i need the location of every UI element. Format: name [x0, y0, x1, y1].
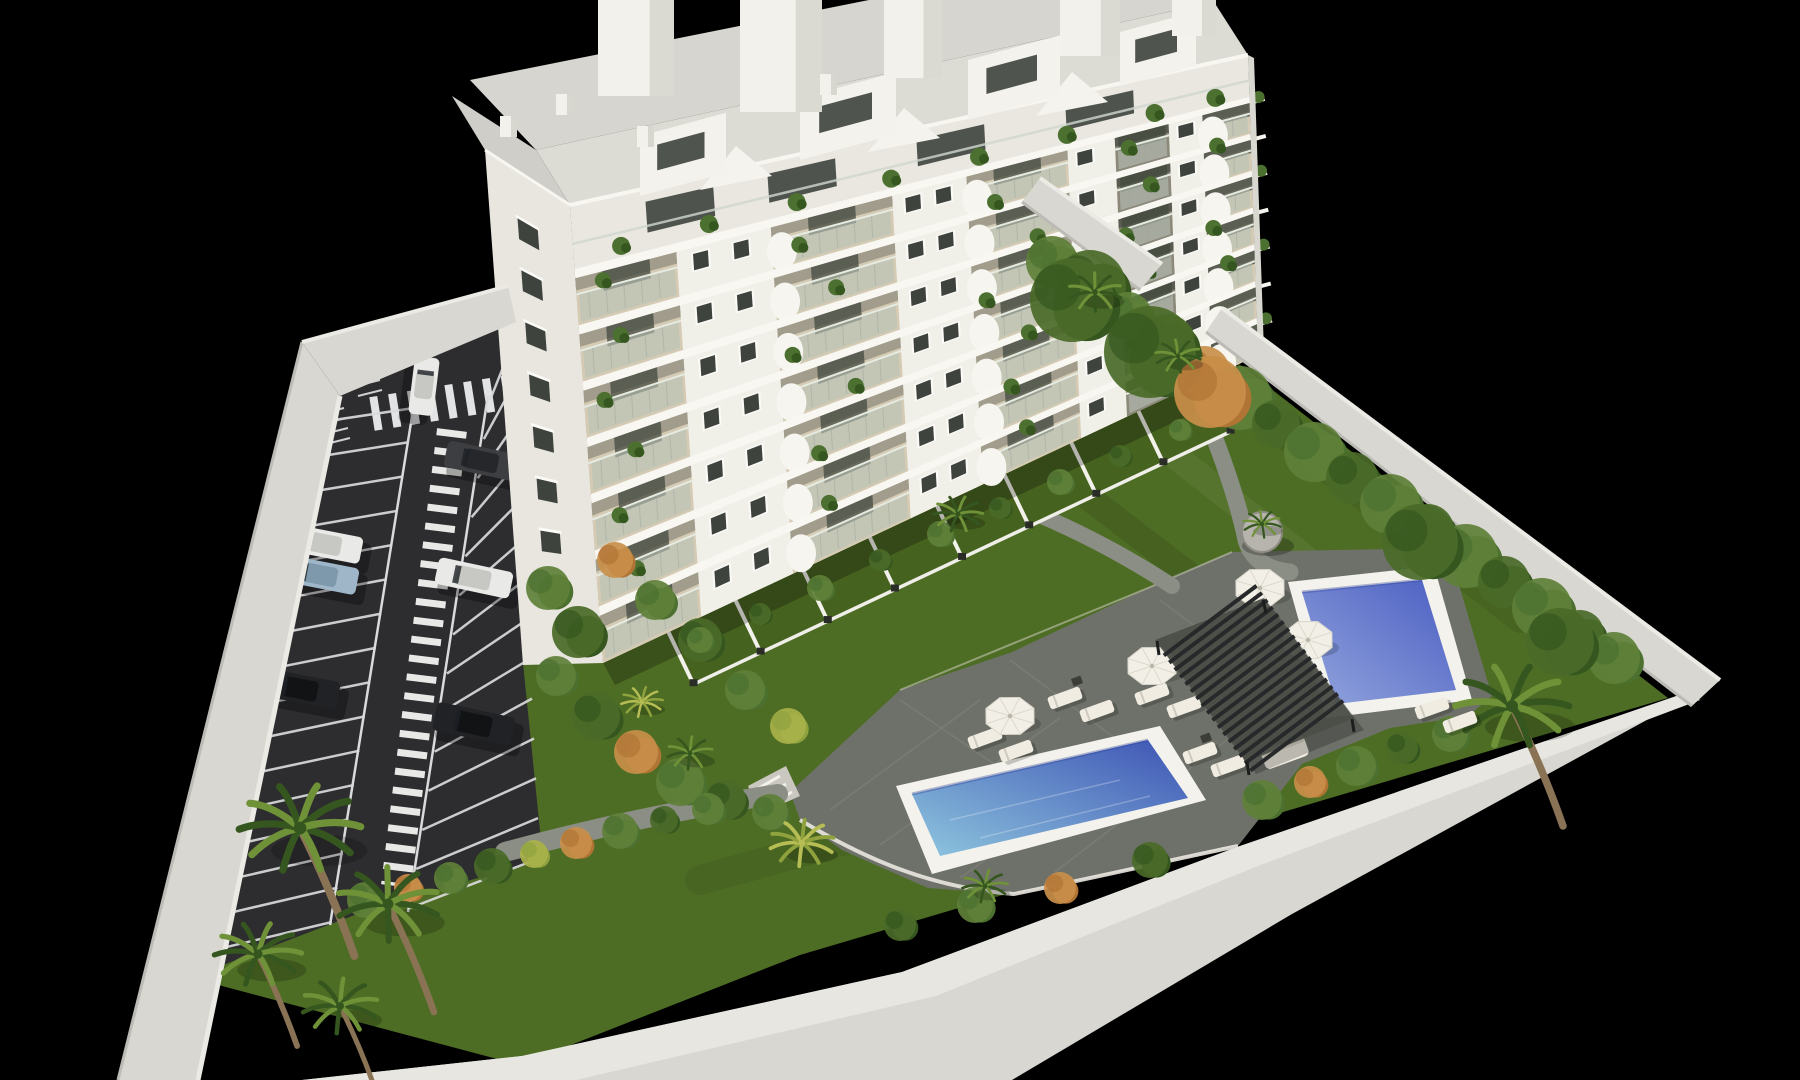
terrace-hedge	[688, 629, 702, 643]
parasol-pole	[1008, 714, 1012, 718]
rail-mullion	[1236, 231, 1237, 248]
balcony-plant	[994, 200, 1004, 210]
terrace-hedge	[750, 605, 762, 617]
render-canvas	[0, 0, 1800, 1080]
border-bush	[604, 816, 624, 836]
palm-crown	[640, 700, 644, 704]
roof-bulkhead-shade	[1202, 0, 1216, 36]
garden-bush	[574, 696, 600, 722]
palm-crown	[983, 884, 988, 889]
wall-bush	[1244, 783, 1266, 805]
palm-crown	[799, 840, 806, 847]
palm-crown	[1260, 522, 1264, 526]
palm-crown	[336, 1002, 344, 1010]
terrace-hedge	[808, 577, 822, 591]
parasol-pole	[1150, 664, 1154, 668]
roof-bulkhead-shade	[923, 0, 942, 78]
balcony-plant	[1227, 261, 1237, 271]
terrace-post	[824, 616, 832, 623]
balcony-plant	[818, 451, 828, 461]
border-bush	[694, 795, 712, 813]
wall-bush	[1296, 768, 1314, 786]
terrace-hedge	[1110, 447, 1122, 459]
balcony-plant	[792, 353, 802, 363]
garden-bush	[637, 583, 659, 605]
balcony-plant	[828, 501, 838, 511]
balcony-plant	[1026, 425, 1036, 435]
balcony-plant	[1212, 226, 1222, 236]
terrace-post	[757, 648, 765, 655]
roof-bulkhead-shade	[796, 0, 822, 112]
balcony-plant	[1128, 146, 1138, 156]
palm-crown	[1506, 700, 1518, 712]
balcony-plant	[604, 398, 614, 408]
balcony-plant	[602, 278, 612, 288]
roof-chimney-shade	[648, 126, 654, 147]
palm-crown	[955, 511, 960, 516]
terrace-hedge	[1170, 421, 1182, 433]
terrace-hedge	[928, 523, 942, 537]
terrace-plant	[1215, 95, 1225, 105]
garden-bush	[772, 711, 792, 731]
garden-bush	[599, 545, 619, 565]
garden-bush	[658, 762, 684, 788]
garden-bush	[616, 733, 640, 757]
hedge-bush	[1329, 456, 1358, 485]
terrace-plant	[1155, 110, 1165, 120]
hedge-bush	[1287, 427, 1320, 460]
palm-crown	[1176, 354, 1181, 359]
balcony-plant	[986, 298, 996, 308]
terrace-plant	[891, 176, 901, 186]
balcony-plant	[1010, 385, 1020, 395]
terrace-hedge	[990, 499, 1002, 511]
border-bush	[521, 842, 536, 857]
parasol-pole	[1258, 586, 1262, 590]
terrace-plant	[621, 243, 631, 253]
garden-bush	[555, 610, 584, 639]
terrace-plant	[709, 221, 719, 231]
balcony-plant	[835, 285, 845, 295]
garden-bush	[538, 659, 560, 681]
terrace-post	[1159, 458, 1167, 465]
hedge-bush	[1386, 510, 1428, 552]
wall-bush	[1046, 874, 1064, 892]
roof-bulkhead-shade	[650, 0, 674, 96]
palm-crown	[294, 822, 307, 835]
terrace-hedge	[870, 551, 882, 563]
palm-crown	[1092, 289, 1098, 295]
balcony-plant	[1150, 182, 1160, 192]
wall-bush	[1338, 749, 1360, 771]
border-bush	[436, 864, 454, 882]
terrace-plant	[1067, 132, 1077, 142]
hedge-bush	[1109, 313, 1160, 364]
garden-bush	[727, 673, 749, 695]
balcony-plant	[1216, 144, 1226, 154]
balcony-plant	[636, 566, 646, 576]
rail-mullion	[1234, 156, 1235, 173]
terrace-post	[891, 584, 899, 591]
rail-mullion	[1238, 268, 1239, 285]
balcony-plant	[634, 447, 644, 457]
curved-balcony-front	[976, 448, 1006, 486]
palm-crown	[688, 751, 693, 756]
hedge-bush	[1529, 613, 1566, 650]
rail-mullion	[1235, 194, 1236, 211]
palm-frond	[388, 904, 389, 941]
roof-chimney-shade	[567, 94, 573, 115]
terrace-hedge	[1048, 471, 1062, 485]
garden-bush	[528, 569, 552, 593]
architectural-render	[0, 0, 1800, 1080]
hedge-bush	[1363, 479, 1396, 512]
balcony-plant	[1028, 330, 1038, 340]
garden-bush	[754, 797, 774, 817]
rail-mullion	[1232, 119, 1233, 136]
palm-crown	[253, 949, 262, 958]
hedge-bush	[1481, 560, 1510, 589]
roof-chimney-shade	[831, 74, 837, 95]
border-bush	[651, 808, 666, 823]
parasol-pole	[1306, 638, 1310, 642]
terrace-post	[958, 553, 966, 560]
balcony-plant	[855, 384, 865, 394]
roof-bulkhead-shade	[1101, 0, 1120, 56]
palm-frond	[387, 867, 388, 904]
terrace-post	[1025, 521, 1033, 528]
balcony-plant	[619, 333, 629, 343]
hedge-bush	[1515, 583, 1548, 616]
side-window	[540, 531, 561, 555]
balcony-plant	[619, 513, 629, 523]
wall-bush	[1388, 734, 1406, 752]
terrace-post	[690, 679, 698, 686]
border-bush	[476, 851, 496, 871]
terrace-plant	[979, 154, 989, 164]
wall-bush	[1134, 845, 1154, 865]
curved-balcony-front	[767, 232, 797, 270]
wall-bush	[886, 911, 904, 929]
terrace-post	[1092, 490, 1100, 497]
terrace-plant	[797, 199, 807, 209]
palm-crown	[383, 899, 394, 910]
curved-balcony-front	[786, 534, 816, 572]
hedge-bush	[1254, 404, 1280, 430]
balcony-plant	[798, 243, 808, 253]
roof-chimney-shade	[511, 116, 517, 137]
border-bush	[562, 829, 580, 847]
